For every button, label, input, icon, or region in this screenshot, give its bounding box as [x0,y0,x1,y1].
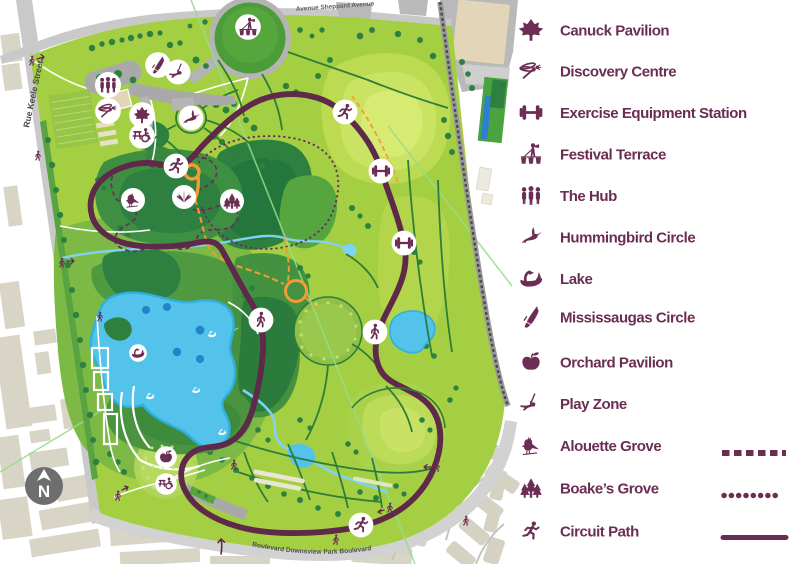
svg-text:The Hub: The Hub [560,188,617,205]
svg-text:Exercise Equipment Station: Exercise Equipment Station [560,105,747,122]
svg-text:Alouette Grove: Alouette Grove [560,438,661,455]
svg-text:Discovery Centre: Discovery Centre [560,64,676,81]
svg-text:Play Zone: Play Zone [560,396,627,413]
svg-text:Circuit Path: Circuit Path [560,524,639,541]
svg-text:Boake’s Grove: Boake’s Grove [560,481,659,498]
svg-text:Hummingbird Circle: Hummingbird Circle [560,230,695,247]
svg-text:Lake: Lake [560,271,592,288]
svg-text:Canuck Pavilion: Canuck Pavilion [560,23,669,40]
svg-text:Orchard Pavilion: Orchard Pavilion [560,355,673,372]
svg-text:Festival Terrace: Festival Terrace [560,147,666,164]
svg-text:N: N [38,482,50,501]
svg-text:Mississaugas Circle: Mississaugas Circle [560,310,695,327]
